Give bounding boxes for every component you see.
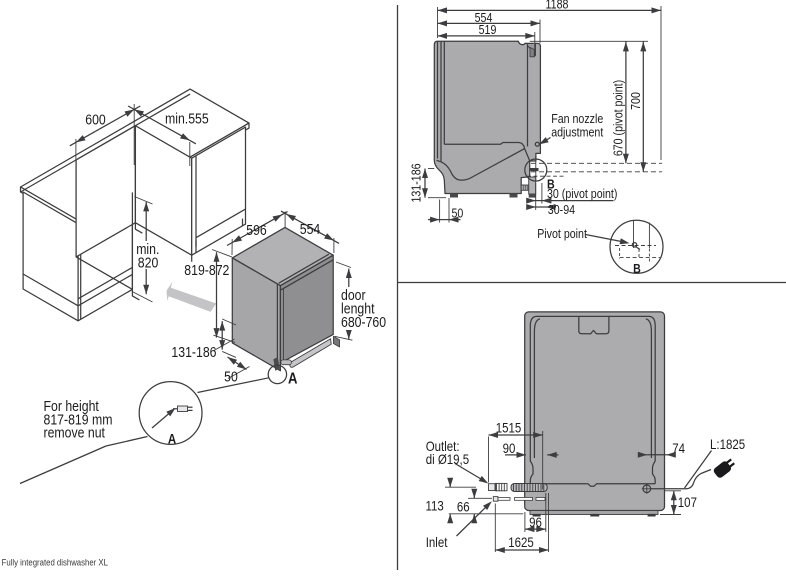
- svg-text:remove nut: remove nut: [44, 424, 106, 440]
- svg-text:min.555: min.555: [165, 110, 209, 126]
- svg-text:680-760: 680-760: [341, 314, 386, 330]
- svg-text:96: 96: [529, 514, 542, 530]
- svg-text:131-186: 131-186: [408, 163, 423, 202]
- svg-text:A: A: [288, 370, 298, 387]
- svg-text:820: 820: [138, 254, 159, 270]
- svg-text:131-186: 131-186: [171, 344, 216, 360]
- svg-text:adjustment: adjustment: [551, 124, 604, 139]
- svg-text:Pivot point: Pivot point: [537, 226, 587, 241]
- svg-text:107: 107: [678, 494, 697, 510]
- svg-text:50: 50: [224, 368, 238, 384]
- svg-text:519: 519: [479, 22, 497, 37]
- svg-text:1188: 1188: [546, 0, 569, 12]
- svg-text:670 (pivot point): 670 (pivot point): [610, 80, 625, 156]
- svg-text:30-94: 30-94: [548, 202, 576, 217]
- svg-text:L:1825: L:1825: [710, 436, 745, 452]
- svg-text:di Ø19,5: di Ø19,5: [426, 451, 469, 467]
- svg-text:113: 113: [426, 497, 444, 513]
- svg-text:30 (pivot point): 30 (pivot point): [547, 186, 617, 201]
- svg-text:819-872: 819-872: [184, 262, 229, 278]
- svg-text:90: 90: [503, 440, 516, 456]
- svg-text:1625: 1625: [508, 534, 534, 550]
- svg-text:600: 600: [85, 111, 106, 127]
- svg-text:596: 596: [246, 222, 267, 238]
- svg-text:A: A: [168, 430, 176, 446]
- svg-text:Fully integrated dishwasher XL: Fully integrated dishwasher XL: [2, 557, 108, 568]
- svg-text:74: 74: [672, 440, 685, 456]
- svg-text:50: 50: [452, 205, 464, 220]
- svg-text:66: 66: [457, 498, 470, 514]
- svg-text:1515: 1515: [496, 420, 522, 436]
- svg-text:554: 554: [300, 221, 321, 237]
- svg-text:B: B: [633, 261, 641, 276]
- svg-text:700: 700: [628, 92, 643, 110]
- svg-text:Inlet: Inlet: [426, 534, 448, 550]
